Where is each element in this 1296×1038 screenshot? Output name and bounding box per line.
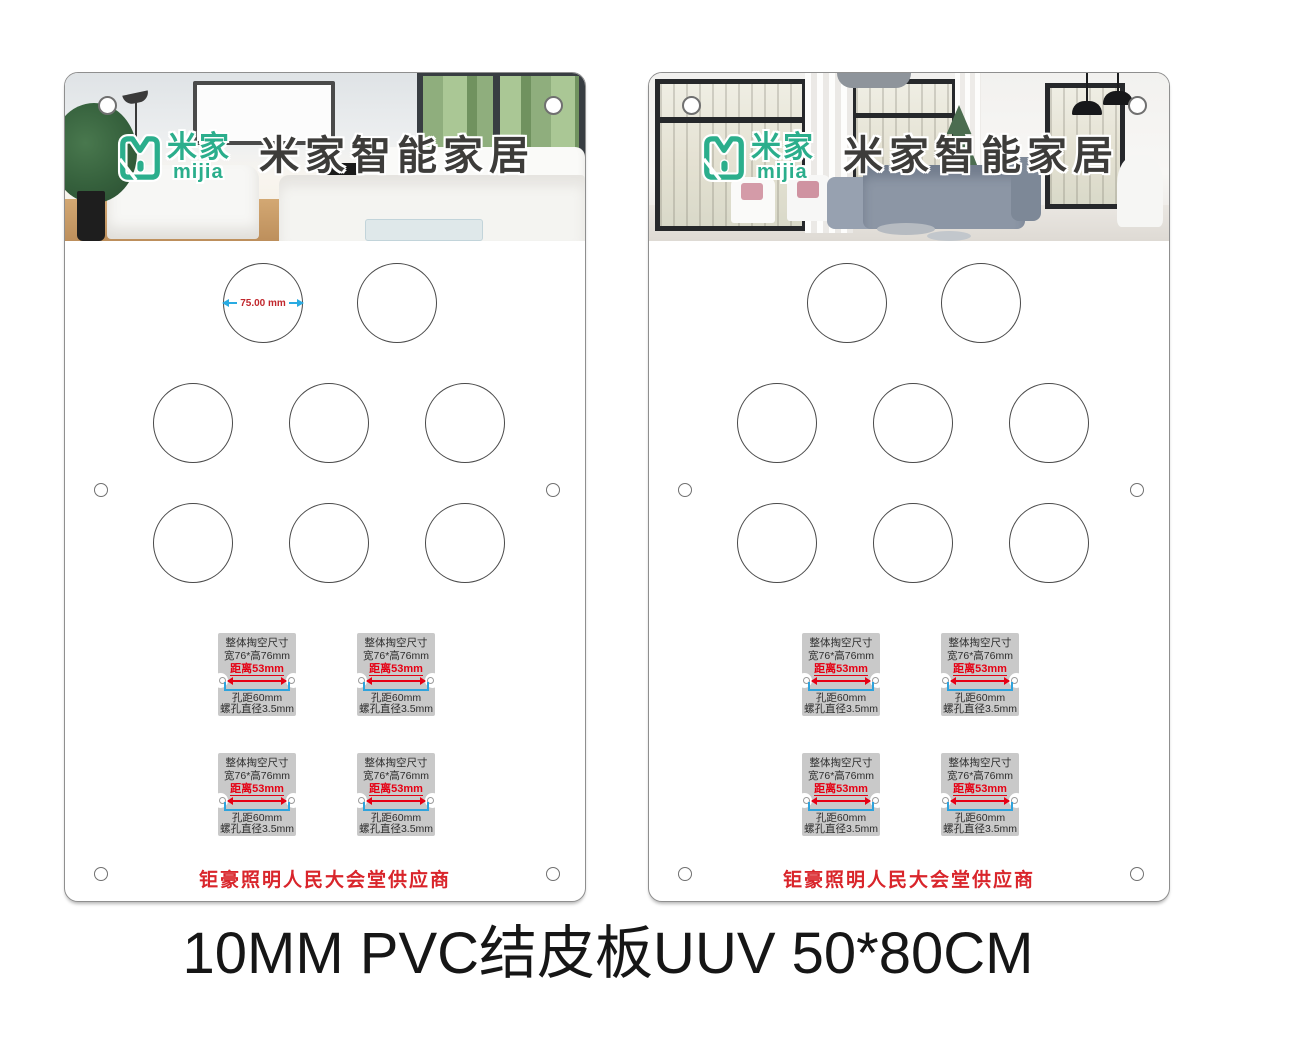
- mounting-spec-label: 整体掏空尺寸 宽76*高76mm 距离53mm 孔距60mm 螺孔直径3.5mm: [357, 633, 435, 716]
- cutout-circle: [941, 263, 1021, 343]
- arrowhead-right-icon: [865, 677, 871, 685]
- dimension-tick: [363, 802, 365, 811]
- spec-cutout-title: 整体掏空尺寸: [941, 637, 1019, 649]
- spec-cutout-size: 宽76*高76mm: [802, 650, 880, 662]
- dimension-tick: [288, 682, 290, 691]
- arrowhead-right-icon: [281, 797, 287, 805]
- mounting-spec-label: 整体掏空尺寸 宽76*高76mm 距离53mm 孔距60mm 螺孔直径3.5mm: [357, 753, 435, 836]
- mounting-hole: [546, 483, 560, 497]
- blue-dimension-line: [808, 689, 874, 691]
- mounting-hole: [1130, 483, 1144, 497]
- red-distance-arrow: [367, 800, 425, 802]
- spec-distance-value: 距离53mm: [814, 783, 868, 796]
- display-board-right: 米家 mijia 米家智能家居 整体掏空尺寸 宽76*高76mm 距离53mm …: [648, 72, 1170, 902]
- dimension-tick: [1011, 802, 1013, 811]
- red-distance-arrow: [228, 680, 286, 682]
- red-distance-arrow: [812, 680, 870, 682]
- spec-distance-value: 距离53mm: [230, 663, 284, 676]
- spec-screw-diameter: 螺孔直径3.5mm: [941, 703, 1019, 715]
- caption-text: 10MM PVC结皮板UUV 50*80CM: [0, 916, 1216, 992]
- arrowhead-left-icon: [811, 797, 817, 805]
- red-distance-arrow: [228, 800, 286, 802]
- mounting-spec-label: 整体掏空尺寸 宽76*高76mm 距离53mm 孔距60mm 螺孔直径3.5mm: [218, 753, 296, 836]
- spec-screw-diameter: 螺孔直径3.5mm: [357, 823, 435, 835]
- arrowhead-right-icon: [1004, 677, 1010, 685]
- spec-distance-value: 距离53mm: [814, 663, 868, 676]
- spec-cutout-size: 宽76*高76mm: [218, 650, 296, 662]
- dimension-line: [229, 302, 237, 304]
- mounting-hole: [1128, 96, 1147, 115]
- spec-distance-value: 距离53mm: [230, 783, 284, 796]
- cutout-circle: [737, 503, 817, 583]
- spec-cutout-size: 宽76*高76mm: [357, 650, 435, 662]
- spec-screw-diameter: 螺孔直径3.5mm: [218, 823, 296, 835]
- red-distance-arrow: [951, 800, 1009, 802]
- spec-screw-diameter: 螺孔直径3.5mm: [802, 703, 880, 715]
- dimension-tick: [808, 682, 810, 691]
- cutout-circle: [873, 383, 953, 463]
- arrowhead-left-icon: [950, 797, 956, 805]
- cutout-circle: [737, 383, 817, 463]
- dimension-tick: [427, 802, 429, 811]
- design-proof-canvas: 米家 mijia 米家智能家居 整体掏空尺寸 宽76*高76mm 距离53mm …: [0, 0, 1296, 1038]
- spec-distance: 距离53mm: [802, 663, 880, 676]
- mounting-spec-label: 整体掏空尺寸 宽76*高76mm 距离53mm 孔距60mm 螺孔直径3.5mm: [802, 633, 880, 716]
- arrowhead-right-icon: [865, 797, 871, 805]
- cutout-circle: [1009, 503, 1089, 583]
- blue-dimension-line: [363, 689, 429, 691]
- cutout-circle: [153, 503, 233, 583]
- dimension-tick: [947, 682, 949, 691]
- spec-distance: 距离53mm: [941, 663, 1019, 676]
- arrowhead-right-icon: [420, 797, 426, 805]
- mounting-hole: [98, 96, 117, 115]
- spec-cutout-title: 整体掏空尺寸: [357, 637, 435, 649]
- mounting-hole: [544, 96, 563, 115]
- dimension-line: [289, 302, 297, 304]
- dimension-tick: [224, 682, 226, 691]
- spec-distance: 距离53mm: [357, 783, 435, 796]
- arrowhead-right-icon: [281, 677, 287, 685]
- blue-dimension-line: [808, 809, 874, 811]
- arrowhead-right-icon: [297, 299, 304, 307]
- red-distance-arrow: [367, 680, 425, 682]
- supplier-text: 钜豪照明人民大会堂供应商: [65, 865, 585, 892]
- dimension-tick: [427, 682, 429, 691]
- cutout-circle: [873, 503, 953, 583]
- spec-cutout-title: 整体掏空尺寸: [357, 757, 435, 769]
- arrowhead-left-icon: [227, 797, 233, 805]
- arrowhead-left-icon: [950, 677, 956, 685]
- blue-dimension-line: [224, 689, 290, 691]
- spec-cutout-title: 整体掏空尺寸: [941, 757, 1019, 769]
- arrowhead-right-icon: [1004, 797, 1010, 805]
- mounting-hole: [94, 483, 108, 497]
- cutout-circle: [153, 383, 233, 463]
- mounting-spec-label: 整体掏空尺寸 宽76*高76mm 距离53mm 孔距60mm 螺孔直径3.5mm: [218, 633, 296, 716]
- dimension-tick: [288, 802, 290, 811]
- spec-screw-diameter: 螺孔直径3.5mm: [941, 823, 1019, 835]
- cutout-circle: [289, 383, 369, 463]
- dimension-tick: [224, 802, 226, 811]
- spec-distance: 距离53mm: [802, 783, 880, 796]
- arrowhead-left-icon: [222, 299, 229, 307]
- spec-distance: 距离53mm: [941, 783, 1019, 796]
- spec-cutout-size: 宽76*高76mm: [802, 770, 880, 782]
- mounting-hole: [682, 96, 701, 115]
- supplier-text: 钜豪照明人民大会堂供应商: [649, 865, 1169, 892]
- cutout-circle: [425, 383, 505, 463]
- blue-dimension-line: [947, 809, 1013, 811]
- diameter-value: 75.00 mm: [237, 298, 289, 309]
- spec-cutout-title: 整体掏空尺寸: [802, 757, 880, 769]
- diameter-dimension: 75.00 mm: [222, 295, 304, 311]
- red-distance-arrow: [951, 680, 1009, 682]
- cutout-circle: [1009, 383, 1089, 463]
- display-board-left: 米家 mijia 米家智能家居 整体掏空尺寸 宽76*高76mm 距离53mm …: [64, 72, 586, 902]
- arrowhead-left-icon: [811, 677, 817, 685]
- spec-screw-diameter: 螺孔直径3.5mm: [218, 703, 296, 715]
- spec-distance-value: 距离53mm: [369, 663, 423, 676]
- spec-cutout-title: 整体掏空尺寸: [218, 637, 296, 649]
- spec-cutout-size: 宽76*高76mm: [218, 770, 296, 782]
- spec-cutout-size: 宽76*高76mm: [357, 770, 435, 782]
- blue-dimension-line: [947, 689, 1013, 691]
- dimension-tick: [872, 682, 874, 691]
- dimension-tick: [872, 802, 874, 811]
- arrowhead-left-icon: [227, 677, 233, 685]
- spec-cutout-size: 宽76*高76mm: [941, 770, 1019, 782]
- blue-dimension-line: [363, 809, 429, 811]
- arrowhead-left-icon: [366, 797, 372, 805]
- mounting-spec-label: 整体掏空尺寸 宽76*高76mm 距离53mm 孔距60mm 螺孔直径3.5mm: [802, 753, 880, 836]
- arrowhead-left-icon: [366, 677, 372, 685]
- arrowhead-right-icon: [420, 677, 426, 685]
- spec-distance-value: 距离53mm: [369, 783, 423, 796]
- mounting-spec-label: 整体掏空尺寸 宽76*高76mm 距离53mm 孔距60mm 螺孔直径3.5mm: [941, 753, 1019, 836]
- mounting-spec-label: 整体掏空尺寸 宽76*高76mm 距离53mm 孔距60mm 螺孔直径3.5mm: [941, 633, 1019, 716]
- spec-distance: 距离53mm: [357, 663, 435, 676]
- cutout-circle: [425, 503, 505, 583]
- dimension-tick: [947, 802, 949, 811]
- spec-cutout-title: 整体掏空尺寸: [218, 757, 296, 769]
- cutout-circle: [807, 263, 887, 343]
- cutout-circle: [289, 503, 369, 583]
- mounting-hole: [678, 483, 692, 497]
- spec-cutout-size: 宽76*高76mm: [941, 650, 1019, 662]
- red-distance-arrow: [812, 800, 870, 802]
- blue-dimension-line: [224, 809, 290, 811]
- cutout-layer-right: 整体掏空尺寸 宽76*高76mm 距离53mm 孔距60mm 螺孔直径3.5mm…: [649, 73, 1169, 901]
- dimension-tick: [1011, 682, 1013, 691]
- spec-cutout-title: 整体掏空尺寸: [802, 637, 880, 649]
- dimension-tick: [808, 802, 810, 811]
- spec-distance-value: 距离53mm: [953, 783, 1007, 796]
- spec-screw-diameter: 螺孔直径3.5mm: [357, 703, 435, 715]
- cutout-layer-left: 整体掏空尺寸 宽76*高76mm 距离53mm 孔距60mm 螺孔直径3.5mm…: [65, 73, 585, 901]
- spec-distance-value: 距离53mm: [953, 663, 1007, 676]
- spec-distance: 距离53mm: [218, 783, 296, 796]
- spec-screw-diameter: 螺孔直径3.5mm: [802, 823, 880, 835]
- cutout-circle: [357, 263, 437, 343]
- dimension-tick: [363, 682, 365, 691]
- spec-distance: 距离53mm: [218, 663, 296, 676]
